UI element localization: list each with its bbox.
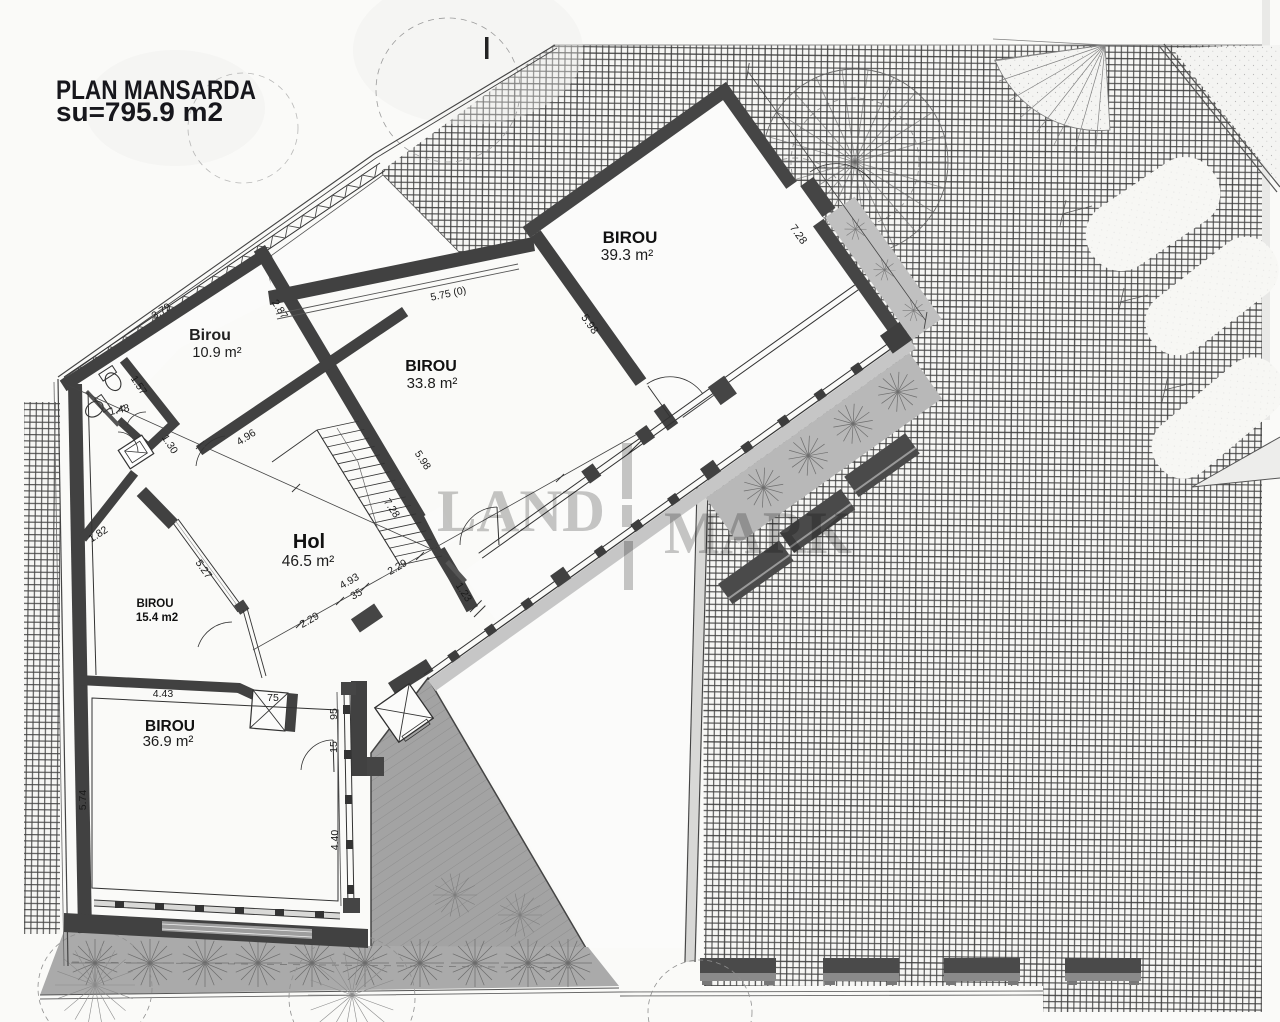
- svg-text:Hol: Hol: [293, 531, 325, 553]
- svg-text:MARK: MARK: [664, 500, 852, 566]
- svg-text:15.4 m2: 15.4 m2: [136, 612, 178, 624]
- svg-text:46.5 m²: 46.5 m²: [282, 553, 335, 570]
- svg-text:BIROU: BIROU: [136, 598, 173, 610]
- svg-text:4.40: 4.40: [329, 830, 341, 851]
- svg-text:36.9 m²: 36.9 m²: [143, 733, 194, 750]
- svg-text:BIROU: BIROU: [603, 228, 658, 247]
- svg-text:4.43: 4.43: [153, 688, 174, 700]
- svg-text:10.9 m²: 10.9 m²: [192, 345, 241, 361]
- svg-text:LAND: LAND: [437, 478, 605, 544]
- svg-text:15: 15: [328, 741, 340, 753]
- svg-text:BIROU: BIROU: [405, 358, 457, 375]
- svg-text:su=795.9 m2: su=795.9 m2: [56, 97, 223, 127]
- svg-text:5.74: 5.74: [77, 790, 89, 811]
- svg-text:95: 95: [328, 708, 340, 720]
- svg-text:39.3 m²: 39.3 m²: [601, 247, 654, 264]
- svg-text:33.8 m²: 33.8 m²: [407, 375, 458, 392]
- svg-text:75: 75: [267, 692, 279, 704]
- svg-text:Birou: Birou: [189, 327, 231, 344]
